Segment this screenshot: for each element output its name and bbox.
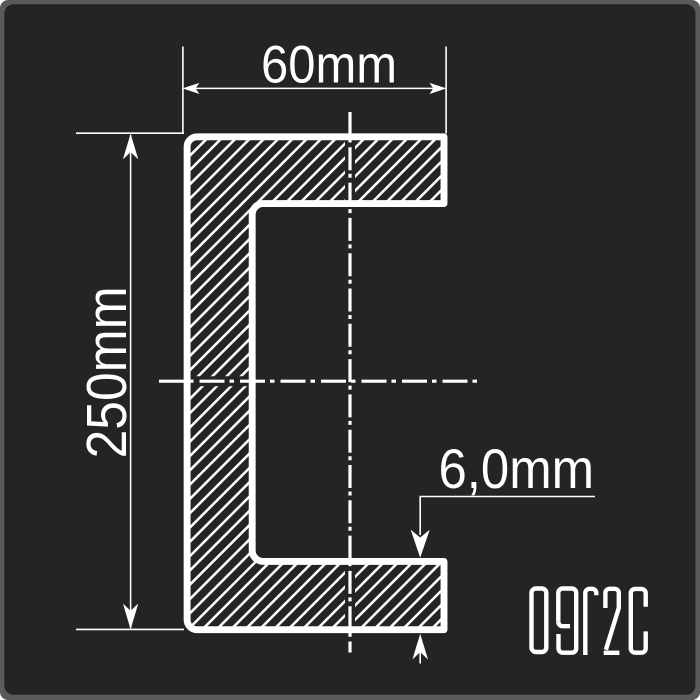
- svg-text:250mm: 250mm: [75, 286, 138, 458]
- svg-text:60mm: 60mm: [261, 36, 397, 95]
- svg-text:6,0mm: 6,0mm: [439, 437, 595, 500]
